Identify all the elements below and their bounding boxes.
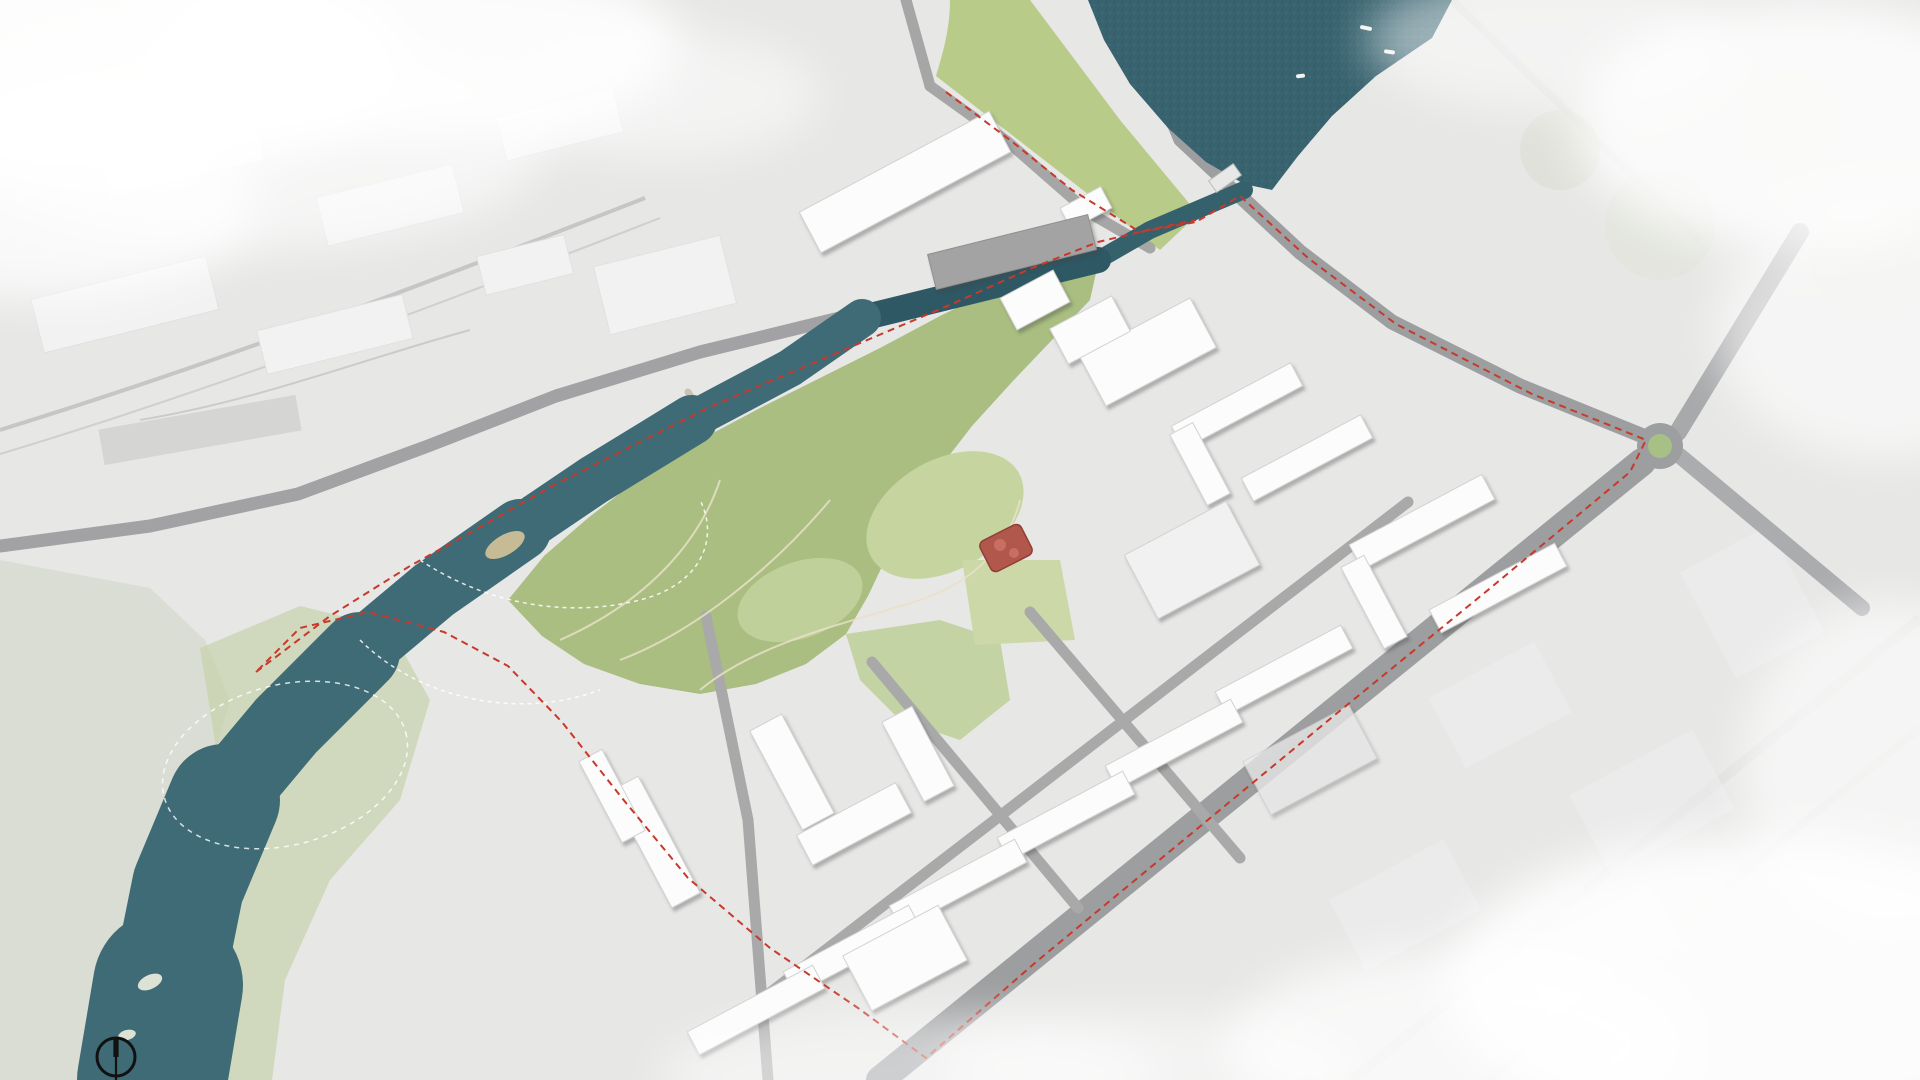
basemap (0, 0, 1920, 1080)
masterplan-map (0, 0, 1920, 1080)
scale-bar (253, 1040, 589, 1076)
north-compass (88, 1031, 148, 1080)
